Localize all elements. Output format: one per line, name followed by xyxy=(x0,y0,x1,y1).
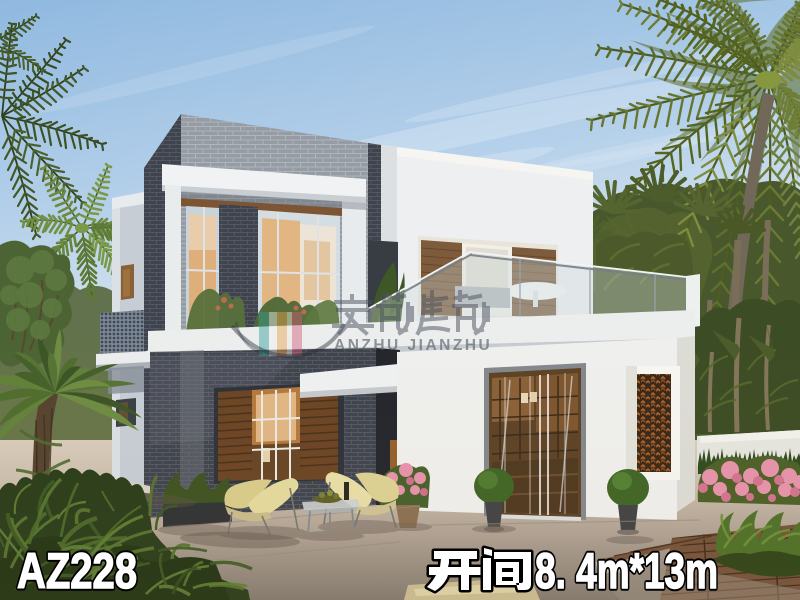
svg-text:ANZHU JIANZHU: ANZHU JIANZHU xyxy=(334,337,492,354)
svg-text:8. 4m*13m: 8. 4m*13m xyxy=(535,543,718,599)
svg-text:AZ228: AZ228 xyxy=(17,543,137,599)
